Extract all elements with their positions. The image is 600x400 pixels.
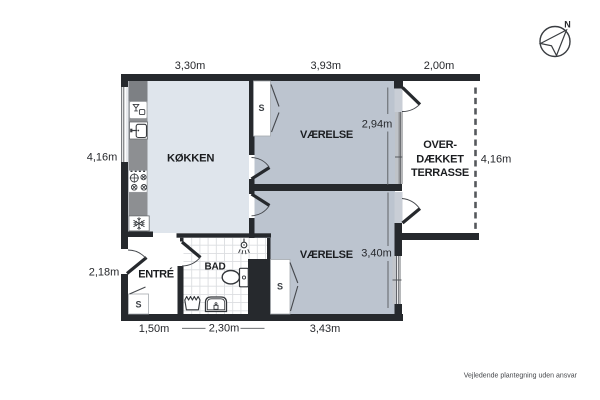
svg-text:KØKKEN: KØKKEN (167, 153, 214, 165)
svg-text:BAD: BAD (204, 262, 225, 273)
svg-text:DÆKKET: DÆKKET (416, 153, 464, 165)
svg-text:ENTRÉ: ENTRÉ (138, 268, 174, 281)
svg-text:4,16m: 4,16m (87, 152, 118, 164)
svg-text:S: S (277, 282, 283, 292)
svg-text:3,30m: 3,30m (175, 60, 206, 72)
svg-text:TERRASSE: TERRASSE (411, 167, 469, 179)
svg-text:3,40m: 3,40m (361, 248, 392, 260)
svg-text:1,50m: 1,50m (139, 323, 170, 335)
svg-text:VÆRELSE: VÆRELSE (300, 249, 353, 261)
svg-text:4,16m: 4,16m (481, 154, 512, 166)
svg-text:2,94m: 2,94m (362, 119, 393, 131)
svg-text:Vejledende plantegning uden an: Vejledende plantegning uden ansvar (464, 373, 578, 380)
svg-text:2,30m: 2,30m (209, 323, 240, 335)
svg-text:3,93m: 3,93m (311, 60, 342, 72)
svg-text:2,18m: 2,18m (89, 267, 120, 279)
svg-text:OVER-: OVER- (423, 139, 457, 151)
svg-text:VÆRELSE: VÆRELSE (300, 129, 353, 141)
svg-text:2,00m: 2,00m (424, 60, 455, 72)
svg-text:S: S (135, 300, 141, 310)
svg-text:3,43m: 3,43m (310, 323, 341, 335)
svg-text:S: S (258, 103, 264, 113)
svg-text:N: N (564, 20, 571, 30)
